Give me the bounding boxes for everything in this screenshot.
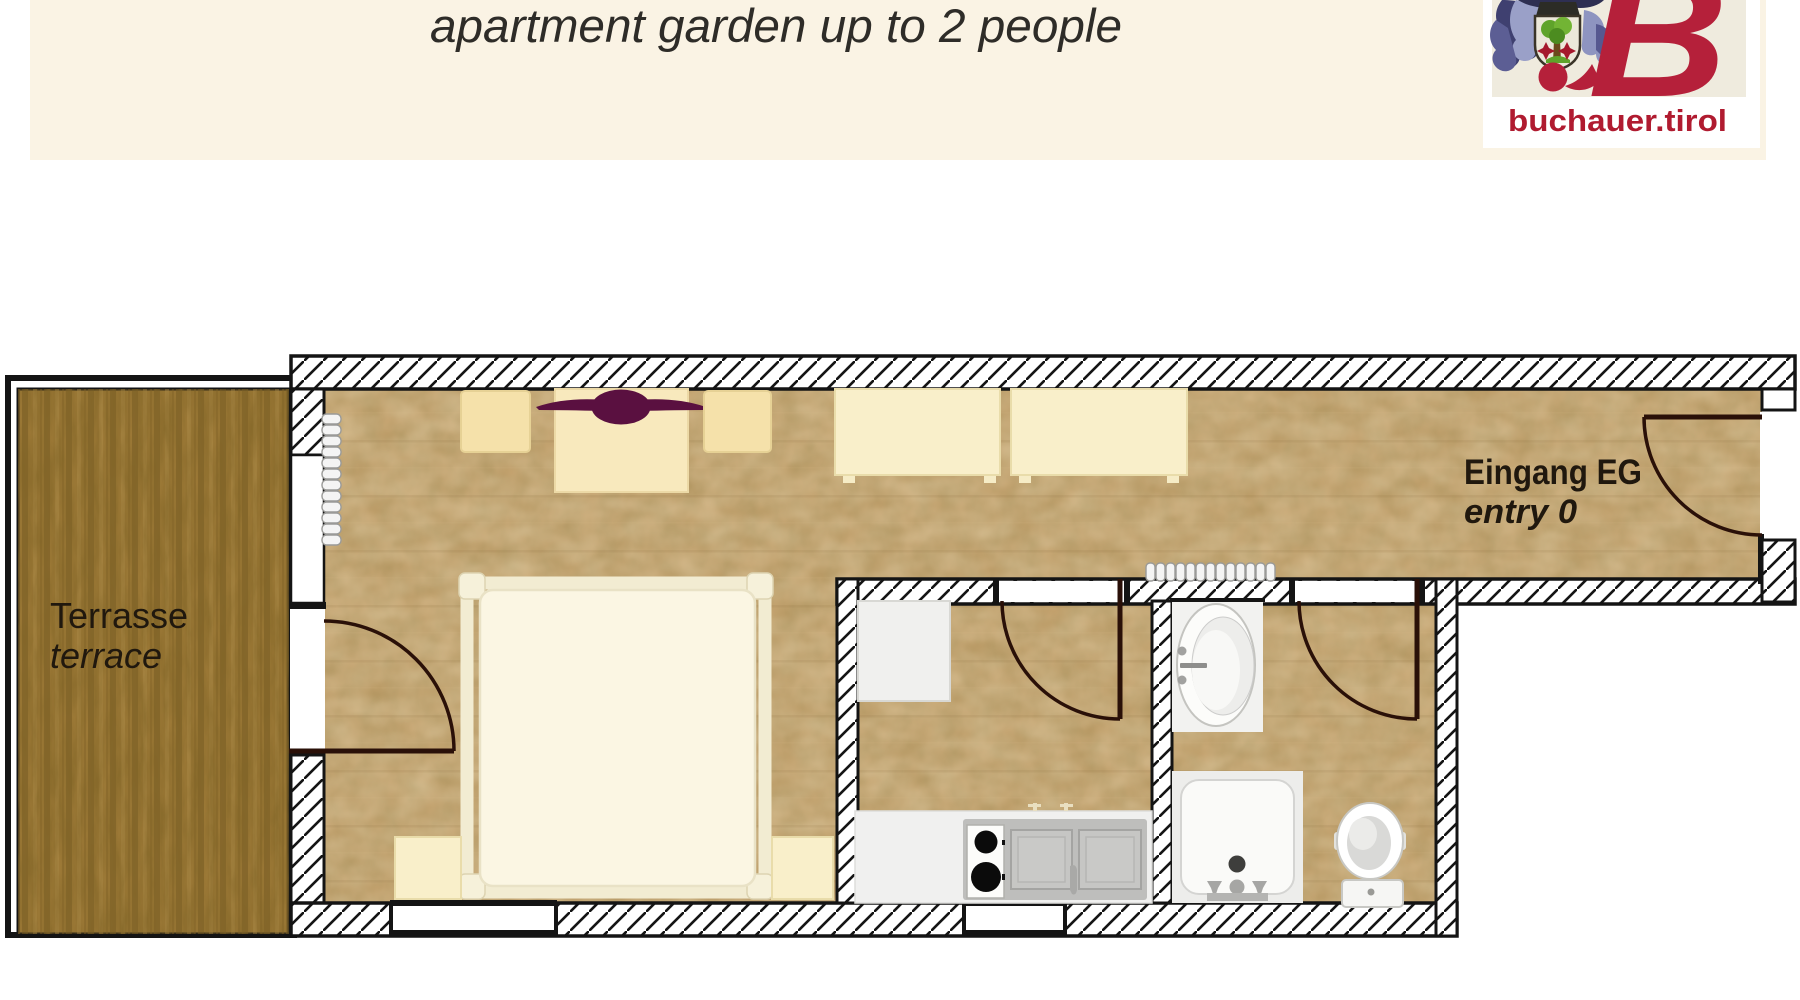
svg-text:terrace: terrace (50, 635, 162, 676)
svg-text:buchauer.tirol: buchauer.tirol (1508, 103, 1727, 138)
svg-text:Eingang EG: Eingang EG (1464, 453, 1642, 492)
svg-text:Terrasse: Terrasse (50, 595, 188, 636)
svg-text:apartment garden up to 2 peopl: apartment garden up to 2 people (430, 0, 1122, 52)
svg-text:entry 0: entry 0 (1464, 493, 1577, 531)
